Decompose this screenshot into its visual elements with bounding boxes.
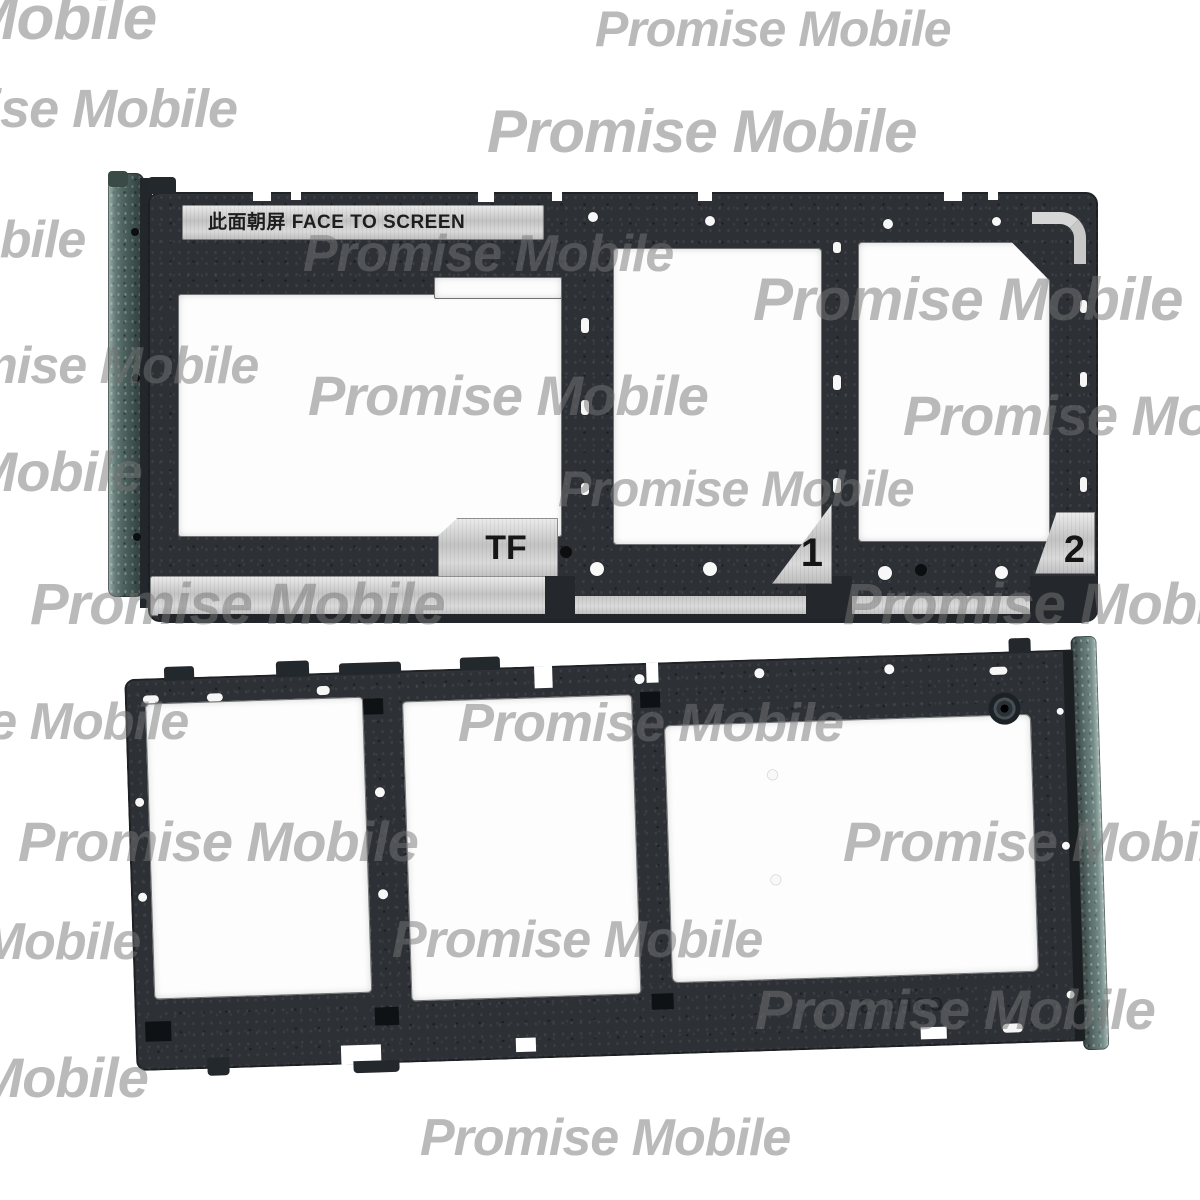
edge-tab [207,1057,230,1076]
watermark-text: Promise Mobile [843,576,1200,634]
dark-pit [560,546,572,558]
watermark-text: Promise Mobile [420,1112,790,1164]
edge-notch [291,192,301,200]
edge-notch [988,191,998,200]
edge-notch [516,1038,536,1053]
tf-tab-label: TF [438,518,558,578]
edge-notch [646,662,659,682]
watermark-text: Promise Mobile [843,814,1200,870]
edge-notch [253,192,271,201]
watermark-text: Promise Mobile [392,914,762,966]
edge-bump [276,660,309,677]
corner-notch [363,698,383,715]
watermark-text: Promise Mobile [0,1050,148,1106]
divider-stem [545,576,575,618]
watermark-text: Promise Mobile [458,696,843,750]
tf-corner-tab: TF [438,518,558,578]
watermark-text: Promise Mobile [30,576,445,634]
pin-hole [992,217,1001,226]
watermark-text: Promise Mobile [0,696,188,748]
watermark-text: Promise Mobile [0,214,85,266]
frame-slot [833,375,841,390]
sim2-tab-label: 2 [1064,529,1085,572]
frame-slot [317,686,330,695]
edge-bump [460,656,500,670]
tray-cap-top-block [108,171,128,187]
frame-slot [989,667,1007,676]
edge-tab [353,1060,399,1073]
edge-bump [164,666,194,681]
frame-top-stub [148,177,176,194]
watermark-text: Promise Mobile [18,814,418,870]
edge-bump [339,662,401,676]
watermark-text: Promise Mobile [0,916,140,968]
edge-notch [944,191,962,201]
edge-notch [478,192,494,202]
watermark-text: Promise Mobile [0,0,156,50]
watermark-text: Promise Mobile [0,444,142,500]
watermark-text: Promise Mobile [487,102,916,162]
watermark-text: Promise Mobile [903,388,1200,444]
product-photo-sim-tray: 此面朝屏 FACE TO SCREEN TF 1 2 [0,0,1200,1200]
watermark-text: Promise Mobile [308,368,708,424]
watermark-text: Promise Mobile [755,982,1155,1038]
watermark-text: Promise Mobile [595,4,951,54]
watermark-text: Promise Mobile [0,82,237,136]
edge-notch [698,191,712,201]
corner-notch [375,1007,400,1026]
corner-notch [145,1021,172,1042]
frame-slot [1080,477,1087,492]
edge-notch [552,192,562,201]
pin-hole [883,219,893,229]
pin-hole [590,562,604,576]
watermark-text: Promise Mobile [558,464,914,514]
edge-notch [534,666,553,689]
pin-hole [588,212,598,222]
watermark-text: Promise Mobile [753,270,1182,330]
corner-silver-accent [1032,212,1086,264]
edge-bump [1008,638,1030,654]
frame-slot [833,242,841,253]
pin-hole [703,562,717,576]
pin-hole [705,216,715,226]
watermark-text: Promise Mobile [303,228,673,280]
cap-pin-mark [133,533,141,541]
cap-pin-mark [131,228,139,236]
watermark-text: Promise Mobile [0,340,258,392]
frame-slot [207,693,223,701]
corner-notch [651,993,673,1010]
frame-slot [581,318,589,333]
